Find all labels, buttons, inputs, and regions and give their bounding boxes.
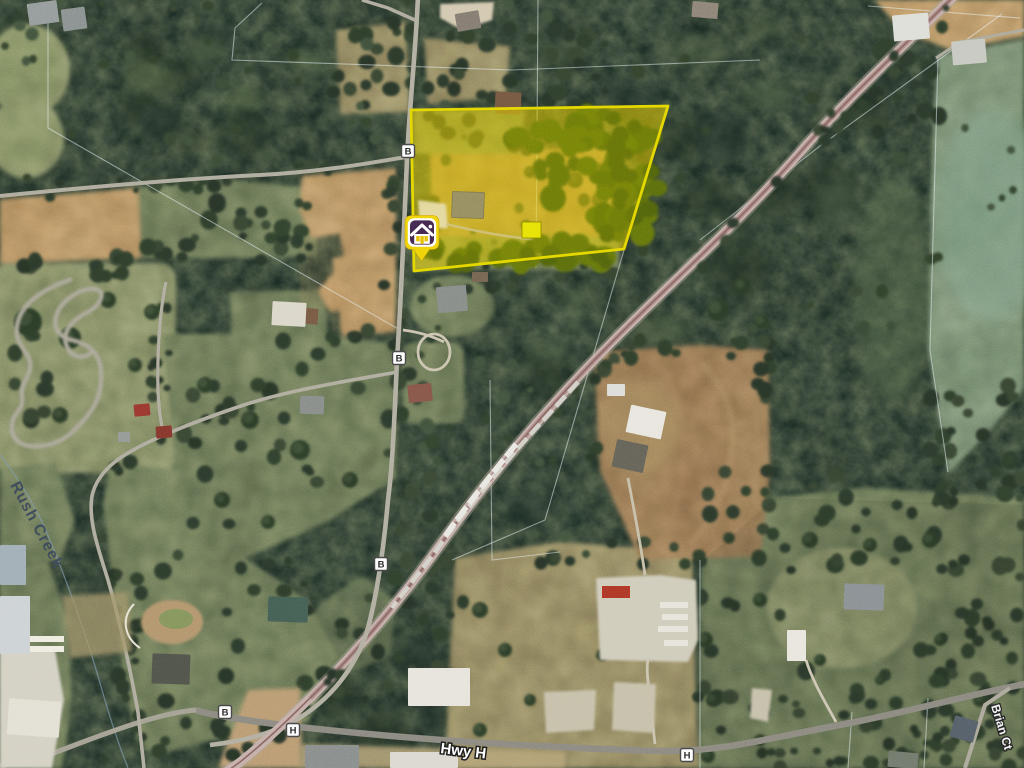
svg-text:B: B: [378, 559, 385, 570]
svg-text:B: B: [396, 353, 403, 364]
svg-text:H: H: [684, 750, 691, 761]
svg-text:H: H: [290, 725, 297, 736]
svg-text:B: B: [405, 146, 412, 157]
svg-text:B: B: [222, 707, 229, 718]
